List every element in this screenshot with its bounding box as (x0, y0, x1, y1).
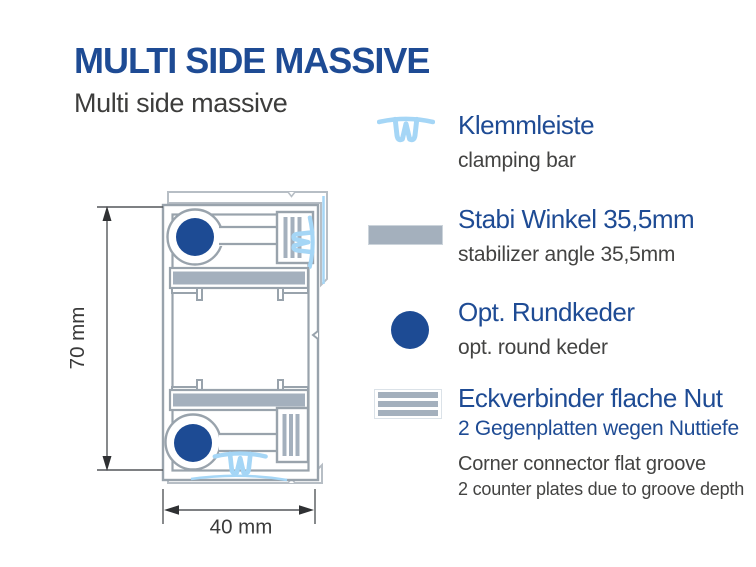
connector-stripe (289, 414, 293, 456)
corner-connector-icon (374, 389, 442, 419)
profile-cross-section-diagram: 70 mm 40 mm (55, 140, 375, 560)
legend-item-title: Opt. Rundkeder (458, 298, 635, 327)
height-dimension (97, 207, 163, 470)
legend-item-title: Eckverbinder flache Nut (458, 384, 723, 413)
legend-item-subtitle: opt. round keder (458, 336, 608, 359)
legend-item-title: Stabi Winkel 35,5mm (458, 205, 694, 234)
connector-stripe (283, 414, 287, 456)
page-subtitle: Multi side massive (74, 88, 287, 119)
stabilizer-bar-bottom (173, 394, 305, 407)
connector-stripe (378, 392, 438, 398)
legend-item-subtitle: stabilizer angle 35,5mm (458, 243, 675, 266)
connector-stripe (378, 410, 438, 416)
legend-item-subtitle2: 2 counter plates due to groove depth (458, 480, 744, 500)
stabilizer-bar-top (173, 272, 305, 285)
page-title: MULTI SIDE MASSIVE (74, 40, 429, 82)
legend-item-subtitle: Corner connector flat groove (458, 453, 706, 475)
arrow-up-icon (103, 206, 112, 221)
connector-stripe (296, 414, 300, 456)
arrow-down-icon (103, 456, 112, 471)
connector-stripe (284, 217, 288, 258)
arrow-right-icon (299, 505, 314, 515)
height-dimension-label: 70 mm (66, 307, 89, 370)
stabilizer-bar-icon (368, 225, 443, 245)
width-dimension-label: 40 mm (210, 516, 273, 539)
legend-item-title-note: 2 Gegenplatten wegen Nuttiefe (458, 417, 739, 440)
legend-item-title: Klemmleiste (458, 111, 594, 140)
clamp-profile-icon (377, 113, 435, 149)
round-keder-bottom (174, 424, 212, 462)
connector-stripe (378, 401, 438, 407)
legend-item-subtitle: clamping bar (458, 149, 576, 172)
arrow-left-icon (164, 505, 179, 515)
round-keder-top (176, 218, 214, 256)
infographic-page: MULTI SIDE MASSIVE Multi side massive (0, 0, 756, 567)
round-keder-icon (391, 311, 429, 349)
